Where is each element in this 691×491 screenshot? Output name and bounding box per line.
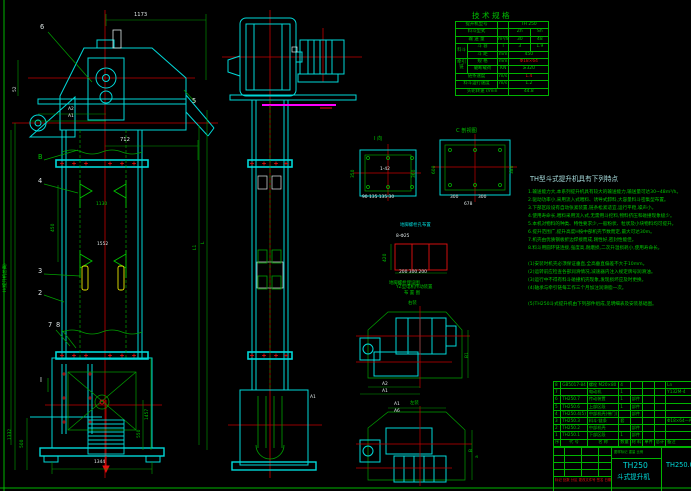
bom-cell: Φ18×64—A bbox=[666, 417, 691, 424]
platform2-dim-a1: A1 bbox=[394, 403, 400, 407]
dim-l1: L1 bbox=[194, 245, 198, 250]
tech-cell: TH 250 bbox=[509, 22, 549, 29]
tech-cell: 30 bbox=[509, 36, 531, 43]
bom-header: 数量 bbox=[619, 439, 630, 446]
title-model: TH250 bbox=[623, 462, 648, 470]
bom-header: 代 号 bbox=[561, 439, 588, 446]
bom-cell: 套 bbox=[619, 417, 630, 424]
bom-cell: 部件 bbox=[630, 425, 643, 432]
dim-1332: 1332 bbox=[9, 429, 13, 440]
tech-cell: 输 送 量 bbox=[456, 36, 498, 43]
bom-header: 名 称 bbox=[587, 439, 618, 446]
bom-cell: 中部机壳(带门) bbox=[587, 410, 618, 417]
tech-cell: 44.8 bbox=[509, 88, 549, 95]
tech-cell: 链条速度 bbox=[456, 73, 498, 80]
bom-cell: 料斗·链条 bbox=[587, 417, 618, 424]
tech-spec-table: 提升机型号TH 250 料斗型式ZhSh 输 送 量m³/h3048 料斗斗 容… bbox=[455, 21, 549, 96]
note-subitem: (3)运行中不得有料斗碰撞机壳现象,发现损坏应及时更换。 bbox=[528, 278, 690, 284]
bom-table: 8GB5017-84螺栓 M20×804Ln 7电动机1Y132M-4 6TH2… bbox=[553, 381, 691, 447]
tech-cell: 牵引链 bbox=[456, 58, 468, 73]
bom-cell: 部件 bbox=[630, 396, 643, 403]
side-view bbox=[222, 10, 362, 478]
part-label-7: 7 bbox=[48, 322, 52, 329]
platform-dim-b1: B1 bbox=[466, 352, 470, 358]
bom-cell: 上部区段 bbox=[587, 403, 618, 410]
secC-dim-678: 678 bbox=[464, 203, 472, 207]
tech-cell: m/s bbox=[498, 73, 509, 80]
scale-line: 图样标记 重量 比例 bbox=[614, 451, 643, 454]
note-item: 2.驱动功率小,采用流入式喂料、诱导式卸料,大容量料斗密集型布置。 bbox=[528, 198, 690, 204]
tech-cell: 料斗 bbox=[456, 44, 468, 59]
note-item: 6.提升范围广,提升高度H按中部机壳节数而定,最大可达30m。 bbox=[528, 230, 690, 236]
bom-header: 单件 bbox=[643, 439, 654, 446]
secC-dim-300b: 300 bbox=[478, 196, 486, 200]
tech-cell: mm bbox=[498, 58, 509, 65]
title-product-name: 斗式提升机 bbox=[617, 474, 650, 481]
bom-cell: 3 bbox=[554, 417, 561, 424]
bom-cell bbox=[666, 396, 691, 403]
note-subitem: (4)轴承与牵引链每工作三个月加注润滑脂一次。 bbox=[528, 286, 690, 292]
bom-cell bbox=[630, 417, 643, 424]
bom-cell: Ln bbox=[666, 382, 691, 389]
dim-total-height: H(提升机总高) bbox=[4, 263, 8, 292]
anchor-dim-420: 420 bbox=[384, 254, 388, 262]
note-item: 7.机壳由优质钢板折边焊接而成,刚性好,密封性能佳。 bbox=[528, 238, 690, 244]
bom-cell bbox=[561, 389, 588, 396]
tech-cell: KN bbox=[498, 66, 509, 73]
bom-header: 总计 bbox=[654, 439, 665, 446]
tech-cell: Sh bbox=[531, 29, 549, 36]
tech-cell: ≥320 bbox=[509, 66, 549, 73]
bom-cell: 4 bbox=[619, 382, 630, 389]
note-item: 8.料斗用圆环链连接,强度高,耐磨损,二次升温损耗小,使用寿命长。 bbox=[528, 246, 690, 252]
bom-cell: 传动装置 bbox=[587, 396, 618, 403]
part-label-4: 4 bbox=[38, 178, 42, 185]
tech-cell: 1.9 bbox=[531, 44, 549, 51]
sec1-dim-left: 350 bbox=[352, 170, 356, 178]
note-subitem: (2)运转前应检查各部润滑情况,减速器内注入规定牌号润滑油。 bbox=[528, 270, 690, 276]
tech-cell: 规 格 bbox=[468, 58, 498, 65]
bom-cell: 7 bbox=[554, 389, 561, 396]
bom-cell: 1 bbox=[619, 403, 630, 410]
tech-cell: 3 bbox=[509, 44, 531, 51]
front-view bbox=[11, 10, 218, 478]
bom-cell: TH250.7 bbox=[561, 396, 588, 403]
bom-cell: TH250.4(5) bbox=[561, 410, 588, 417]
bom-cell: 5 bbox=[554, 403, 561, 410]
tech-cell: 450 bbox=[509, 51, 549, 58]
bom-cell: 部件 bbox=[630, 403, 643, 410]
note-item: 3.下部区段设有自动张紧装置,链条松紧适宜,运行平稳,噪声小。 bbox=[528, 206, 690, 212]
secC-dim-left: 600 bbox=[433, 166, 437, 174]
note-item: 4.使用寿命长,喂料采用流入式,无需用斗挖料,物料挤压和碰撞现象极少。 bbox=[528, 214, 690, 220]
tech-cell: 斗 容 bbox=[468, 44, 498, 51]
dim-550: 550 bbox=[138, 430, 142, 438]
part-label-8: 8 bbox=[56, 322, 60, 329]
title-block: 标记 处数 分区 更改文件号 签名 日期 图样标记 重量 比例 TH250 斗式… bbox=[553, 447, 691, 491]
bom-header: 备注 bbox=[666, 439, 691, 446]
view-label-b: B bbox=[38, 154, 43, 161]
dim-52: 52 bbox=[14, 86, 18, 92]
bom-cell: 1 bbox=[619, 396, 630, 403]
bom-cell bbox=[630, 382, 643, 389]
bom-cell bbox=[630, 389, 643, 396]
tech-cell: Zh bbox=[509, 29, 531, 36]
bom-cell: 下部区段 bbox=[587, 432, 618, 439]
platform2-dim-b: B bbox=[470, 449, 474, 452]
anchor-bolt-detail bbox=[391, 244, 447, 273]
tech-cell: Φ18×64 bbox=[509, 58, 549, 65]
dim-1457: 1457 bbox=[146, 409, 150, 420]
tech-cell: m/s bbox=[498, 81, 509, 88]
cad-drawing-canvas[interactable]: 6 5 B 4 3 2 7 8 Ⅰ 1173 52 A2 A1 712 450 … bbox=[0, 0, 691, 491]
bom-cell: 中部机壳 bbox=[587, 425, 618, 432]
tech-cell: m³/h bbox=[498, 36, 509, 43]
bom-cell bbox=[666, 410, 691, 417]
bom-header: 序 bbox=[554, 439, 561, 446]
sec1-center-label: 1-42 bbox=[380, 168, 390, 172]
tech-cell: mm bbox=[498, 51, 509, 58]
bom-cell bbox=[666, 432, 691, 439]
sec1-dim-bottom: 90 135 135 30 bbox=[362, 196, 394, 200]
bom-cell bbox=[666, 403, 691, 410]
bom-cell: 2 bbox=[554, 425, 561, 432]
dim-1344: 1344 bbox=[94, 461, 105, 465]
bom-cell: TH250.1 bbox=[561, 432, 588, 439]
bom-cell bbox=[619, 425, 630, 432]
platform2-dim-a: a bbox=[476, 455, 480, 458]
bom-cell: Y132M-4 bbox=[666, 389, 691, 396]
sec1-dim-right: 360 bbox=[413, 170, 417, 178]
tech-cell: 1.4 bbox=[509, 73, 549, 80]
anchor-dim-bottom: 200 300 200 bbox=[399, 271, 427, 275]
drive-platform-upper bbox=[356, 306, 470, 394]
dim-500: 500 bbox=[21, 440, 25, 448]
dim-450: 450 bbox=[52, 224, 56, 232]
part-label-6: 6 bbox=[40, 24, 44, 31]
note-item: 5.本机对物料的种类、特性要求少,一般粉状、粒状及小块物料均可提升。 bbox=[528, 222, 690, 228]
drive-platform-lower bbox=[356, 406, 472, 486]
bom-header: 材 料 bbox=[630, 439, 643, 446]
tech-cell: 料斗运行速度 bbox=[456, 81, 498, 88]
platform-dim-a1: A1 bbox=[382, 390, 388, 394]
bom-cell: 4 bbox=[554, 410, 561, 417]
bom-cell bbox=[666, 425, 691, 432]
anchor-title: 地脚螺栓孔布置 bbox=[400, 224, 431, 228]
section1-title: Ⅰ 向 bbox=[374, 137, 382, 142]
platform-lower-label: 左装 bbox=[410, 402, 419, 406]
bom-cell: TH250.3 bbox=[561, 417, 588, 424]
tech-cell: 料斗型式 bbox=[456, 29, 498, 36]
bom-cell: 螺栓 M20×80 bbox=[587, 382, 618, 389]
tech-cell: 斗 距 bbox=[468, 51, 498, 58]
notes-heading: TH型斗式提升机具有下列特点 bbox=[530, 176, 618, 183]
bom-cell: 1 bbox=[619, 432, 630, 439]
bom-cell: GB5017-84 bbox=[561, 382, 588, 389]
part-label-5: 5 bbox=[192, 98, 196, 105]
dim-l: L bbox=[202, 242, 206, 244]
bom-cell: 部件 bbox=[630, 432, 643, 439]
dim-a1: A1 bbox=[68, 115, 74, 119]
secC-dim-300a: 300 bbox=[450, 196, 458, 200]
bom-cell: 1 bbox=[619, 389, 630, 396]
dim-mid-a1: A1 bbox=[310, 396, 316, 400]
tech-cell: 破断载荷 bbox=[468, 66, 498, 73]
dim-712: 712 bbox=[120, 138, 130, 143]
bom-cell: 电动机 bbox=[587, 389, 618, 396]
dim-1130: 1130 bbox=[96, 203, 107, 207]
platform-title-1: YZ型电机传动装置 bbox=[396, 286, 432, 290]
bom-cell bbox=[619, 410, 630, 417]
part-label-3: 3 bbox=[38, 268, 42, 275]
part-label-2: 2 bbox=[38, 290, 42, 297]
bom-cell: 1 bbox=[554, 432, 561, 439]
dim-1552: 1552 bbox=[97, 243, 108, 247]
bom-cell: 8 bbox=[554, 382, 561, 389]
tech-cell: 提升机型号 bbox=[456, 22, 498, 29]
note-item: 1.输送能力大,本系列提升机具有较大的输送能力,输送量可达30~48m³/h。 bbox=[528, 190, 690, 196]
bom-cell: TH250.6 bbox=[561, 403, 588, 410]
sectionC-title: C 剖视图 bbox=[456, 129, 477, 134]
section-view-c bbox=[433, 134, 517, 202]
platform-title-2: 布 置 图 bbox=[404, 292, 420, 296]
dim-a2: A2 bbox=[68, 108, 74, 112]
platform-dim-a2: A2 bbox=[382, 383, 388, 387]
platform2-dim-a6: A6 bbox=[394, 410, 400, 414]
anchor-bolt-spec: 8-Φ25 bbox=[396, 235, 409, 239]
note-footer: (5)TH250斗式提升机由下列部件组成,见明细表及安装基础图。 bbox=[528, 302, 690, 308]
title-drawing-number: TH250.0 bbox=[666, 462, 691, 469]
tech-table-title: 技 术 规 格 bbox=[472, 12, 510, 20]
section-view-1 bbox=[353, 144, 421, 201]
note-subitem: (1)安装时机壳必须保证垂直,全高垂直偏差不大于10mm。 bbox=[528, 262, 690, 268]
secC-dim-right: 380 bbox=[511, 166, 515, 174]
bom-cell: 6 bbox=[554, 396, 561, 403]
tech-cell: 头轮转速 r/min bbox=[456, 88, 509, 95]
section-mark-1: Ⅰ bbox=[40, 377, 42, 384]
platform-upper-label: 右装 bbox=[408, 302, 417, 306]
dim-1173: 1173 bbox=[134, 13, 147, 18]
notes-list: 1.输送能力大,本系列提升机具有较大的输送能力,输送量可达30~48m³/h。 … bbox=[528, 190, 690, 310]
tech-cell: 48 bbox=[531, 36, 549, 43]
tech-cell: l bbox=[498, 44, 509, 51]
bom-cell: TH250.2 bbox=[561, 425, 588, 432]
tech-cell: 1.2 bbox=[509, 81, 549, 88]
bom-cell: 部件 bbox=[630, 410, 643, 417]
revision-line: 标记 处数 分区 更改文件号 签名 日期 bbox=[555, 479, 611, 482]
